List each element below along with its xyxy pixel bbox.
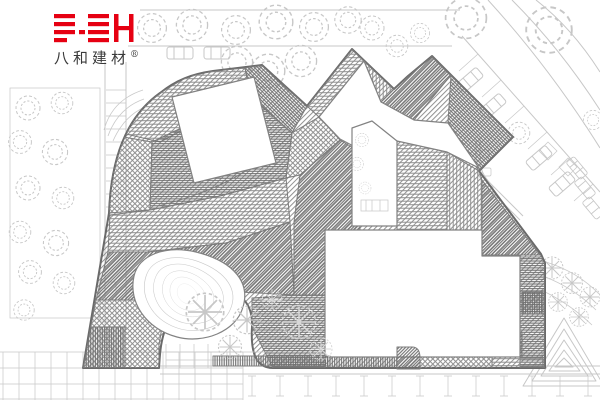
tree-icon (51, 92, 73, 114)
deck-patch (522, 292, 543, 314)
planting-bed-outline (10, 88, 100, 318)
car-icon (582, 196, 600, 219)
stall-icon (416, 376, 424, 396)
stall-icon (248, 376, 256, 396)
tree-icon (9, 221, 31, 243)
tree-icon (43, 230, 68, 255)
deck-patch (397, 140, 447, 230)
tree-icon (508, 122, 530, 144)
tree-icon (360, 16, 384, 40)
tree-icon (285, 45, 316, 76)
tree-icon (222, 16, 251, 45)
deck-patch (84, 327, 125, 368)
tree-icon (16, 176, 40, 200)
car-icon (204, 47, 230, 59)
shrub-icon (562, 273, 583, 294)
bh-logo-mark (54, 14, 138, 43)
registered-mark: ® (130, 50, 139, 60)
courtyard (352, 121, 397, 226)
tree-icon (42, 139, 67, 164)
left-tree-row (9, 92, 75, 320)
shrub-icon (570, 308, 589, 327)
tree-icon (53, 272, 75, 294)
tree-icon (218, 335, 241, 358)
stall-icon (500, 376, 508, 396)
deck-patch (397, 347, 420, 369)
shrub-icon (580, 287, 600, 307)
tree-icon (16, 96, 40, 120)
deck-patch (420, 357, 492, 369)
stall-icon (388, 376, 396, 396)
stall-icon (304, 376, 312, 396)
tree-icon (526, 7, 572, 53)
tree-icon (52, 187, 74, 209)
hedge-strip (213, 356, 330, 366)
stall-icon (360, 376, 368, 396)
stall-icon (276, 376, 284, 396)
car-icon (566, 156, 588, 179)
deck-patch (109, 135, 152, 213)
tree-icon (14, 300, 34, 320)
stall-icon (332, 376, 340, 396)
deck-patch (492, 357, 543, 369)
tree-icon (446, 0, 487, 38)
tree-icon (410, 23, 429, 42)
tree-icon (9, 131, 32, 154)
tree-icon (335, 7, 361, 33)
car-icon (525, 145, 552, 171)
car-icon (574, 176, 596, 199)
tree-icon (300, 13, 329, 42)
tree-icon (19, 261, 42, 284)
stall-icon (444, 376, 452, 396)
shrub-cluster (541, 257, 600, 326)
company-logo: 八和建材® (54, 14, 204, 68)
deck-patch (325, 357, 397, 369)
deck-patch (482, 180, 540, 255)
site-plan-page: 八和建材® (0, 0, 600, 400)
tree-icon (583, 110, 600, 129)
car-icon (548, 171, 575, 197)
stall-icon (472, 376, 480, 396)
company-name: 八和建材® (54, 47, 204, 68)
